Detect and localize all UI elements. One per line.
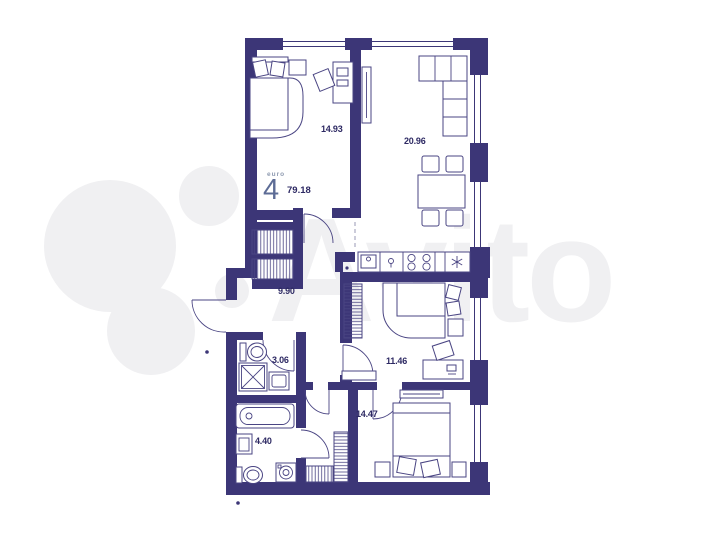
- wall-segment: [470, 360, 488, 405]
- wall-segment: [332, 208, 361, 218]
- wall-segment: [348, 390, 358, 482]
- desk-item-icon: [337, 68, 348, 76]
- wall-segment: [226, 278, 237, 300]
- wall-segment: [226, 332, 263, 340]
- marker-dot: [205, 350, 209, 354]
- bed-headboard-icon: [393, 403, 450, 413]
- shower-icon: [239, 363, 267, 391]
- watermark-circle-small: [179, 166, 239, 226]
- hall-wardrobe-icon: [252, 259, 293, 279]
- window: [372, 38, 453, 50]
- wall-segment: [293, 208, 303, 289]
- washing-machine-icon: [276, 463, 296, 482]
- marker-dot: [345, 266, 348, 269]
- computer-icon: [447, 365, 456, 371]
- wall-segment: [335, 252, 343, 272]
- avito-watermark: Avito: [44, 166, 613, 375]
- room-area-label: 14.93: [321, 124, 343, 134]
- wall-segment: [470, 462, 488, 495]
- room-area-label: 9.90: [278, 286, 295, 296]
- wall-segment: [226, 482, 490, 495]
- wall-segment: [226, 332, 237, 495]
- wall-segment: [328, 382, 377, 390]
- chair-icon: [446, 210, 463, 226]
- desk-icon: [423, 360, 463, 379]
- chair-icon: [446, 156, 463, 172]
- floor-plan-svg: Avito: [0, 0, 719, 540]
- wall-segment: [252, 254, 293, 259]
- dining-table-icon: [418, 175, 465, 208]
- wall-segment: [453, 38, 488, 50]
- entry-door: [192, 300, 226, 332]
- unit-total-area: 79.18: [287, 185, 311, 196]
- sofa-icon: [419, 56, 467, 81]
- room-area-label: 4.40: [255, 436, 272, 446]
- wall-segment: [470, 50, 488, 75]
- wall-segment: [470, 247, 490, 278]
- shoe-cabinet-icon: [306, 466, 333, 482]
- toilet-icon: [240, 343, 267, 361]
- wall-segment: [296, 332, 306, 403]
- floor-plan-image: Avito: [0, 0, 719, 540]
- nightstand-icon: [452, 462, 466, 477]
- nightstand-icon: [289, 60, 306, 75]
- window: [470, 298, 488, 360]
- wall-segment: [470, 278, 488, 298]
- wardrobe-icon: [344, 284, 362, 338]
- sofa-icon: [443, 81, 467, 136]
- room-area-label: 11.46: [386, 356, 407, 366]
- nightstand-icon: [375, 462, 390, 477]
- window: [470, 75, 488, 143]
- hall-wardrobe-icon: [252, 230, 293, 254]
- desk-item-icon: [337, 80, 348, 86]
- furniture-bedroom-bottom: [375, 390, 466, 478]
- room-area-label: 14.47: [356, 409, 378, 419]
- wall-segment: [296, 403, 306, 428]
- wardrobe-icon: [334, 432, 348, 482]
- door-corridor: [305, 390, 329, 414]
- unit-rooms-count: 4: [263, 174, 279, 206]
- pillow-icon: [421, 459, 441, 477]
- wall-segment: [296, 458, 306, 482]
- bathtub-icon: [236, 404, 294, 428]
- watermark-circle-medium: [107, 287, 195, 375]
- wall-segment: [470, 143, 488, 182]
- nightstand-icon: [448, 319, 463, 336]
- window: [470, 405, 488, 462]
- washbasin-icon: [236, 434, 252, 454]
- window: [283, 38, 345, 50]
- bench-icon: [342, 371, 376, 380]
- pillow-icon: [446, 285, 462, 301]
- pillow-icon: [446, 301, 461, 316]
- chair-icon: [313, 69, 335, 92]
- toilet-icon: [236, 467, 263, 484]
- chair-icon: [422, 156, 439, 172]
- bed-mattress-icon: [397, 283, 445, 316]
- pillow-icon: [397, 457, 417, 476]
- wall-segment: [402, 382, 470, 390]
- wall-segment: [226, 395, 306, 403]
- bed-mattress-icon: [250, 78, 288, 130]
- chair-icon: [422, 210, 439, 226]
- window: [470, 182, 488, 247]
- pillow-icon: [270, 61, 285, 77]
- room-area-label: 20.96: [404, 136, 426, 146]
- wall-segment: [340, 272, 470, 282]
- pillow-icon: [253, 60, 269, 77]
- washbasin-icon: [269, 372, 289, 390]
- marker-dot: [236, 501, 240, 505]
- door-bathroom: [301, 430, 329, 458]
- room-area-label: 3.06: [272, 355, 289, 365]
